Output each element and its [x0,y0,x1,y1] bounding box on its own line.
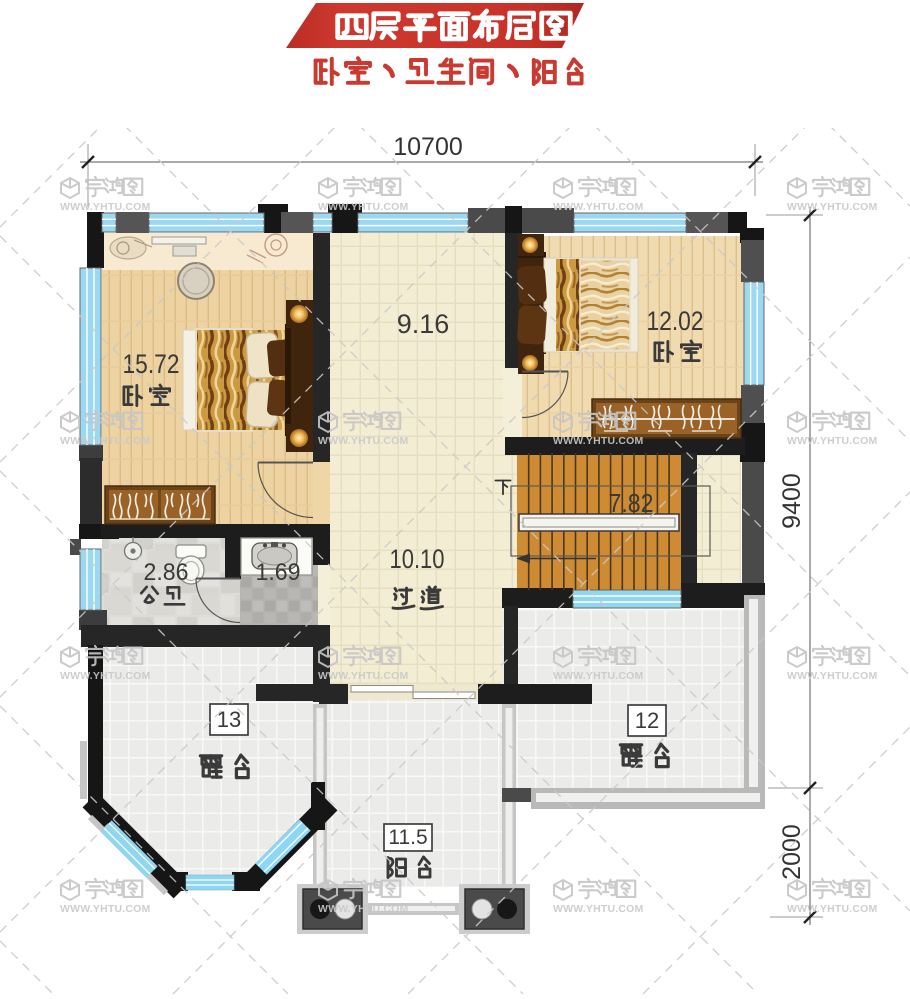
svg-text:WWW.YHTU.COM: WWW.YHTU.COM [787,903,878,915]
svg-text:WWW.YHTU.COM: WWW.YHTU.COM [787,670,878,682]
svg-text:WWW.YHTU.COM: WWW.YHTU.COM [60,903,151,915]
svg-text:2000: 2000 [778,824,806,880]
svg-text:9400: 9400 [778,473,806,529]
svg-text:12.02: 12.02 [647,306,704,336]
svg-text:WWW.YHTU.COM: WWW.YHTU.COM [553,670,644,682]
svg-text:WWW.YHTU.COM: WWW.YHTU.COM [60,435,151,447]
svg-text:15.72: 15.72 [123,349,180,379]
svg-text:WWW.YHTU.COM: WWW.YHTU.COM [318,435,409,447]
svg-text:WWW.YHTU.COM: WWW.YHTU.COM [787,201,878,213]
svg-text:WWW.YHTU.COM: WWW.YHTU.COM [553,903,644,915]
svg-text:WWW.YHTU.COM: WWW.YHTU.COM [318,201,409,213]
svg-text:WWW.YHTU.COM: WWW.YHTU.COM [60,670,151,682]
svg-text:12: 12 [635,708,659,733]
svg-text:WWW.YHTU.COM: WWW.YHTU.COM [60,201,151,213]
svg-text:WWW.YHTU.COM: WWW.YHTU.COM [318,670,409,682]
svg-text:10700: 10700 [393,133,463,161]
svg-text:2.86: 2.86 [144,559,189,586]
svg-text:7.82: 7.82 [609,488,654,518]
svg-text:1.69: 1.69 [256,559,301,586]
svg-text:11.5: 11.5 [388,826,427,849]
svg-text:WWW.YHTU.COM: WWW.YHTU.COM [553,435,644,447]
svg-text:WWW.YHTU.COM: WWW.YHTU.COM [787,435,878,447]
svg-text:WWW.YHTU.COM: WWW.YHTU.COM [318,903,409,915]
svg-text:9.16: 9.16 [397,309,450,339]
svg-text:10.10: 10.10 [390,544,445,574]
svg-text:WWW.YHTU.COM: WWW.YHTU.COM [553,201,644,213]
